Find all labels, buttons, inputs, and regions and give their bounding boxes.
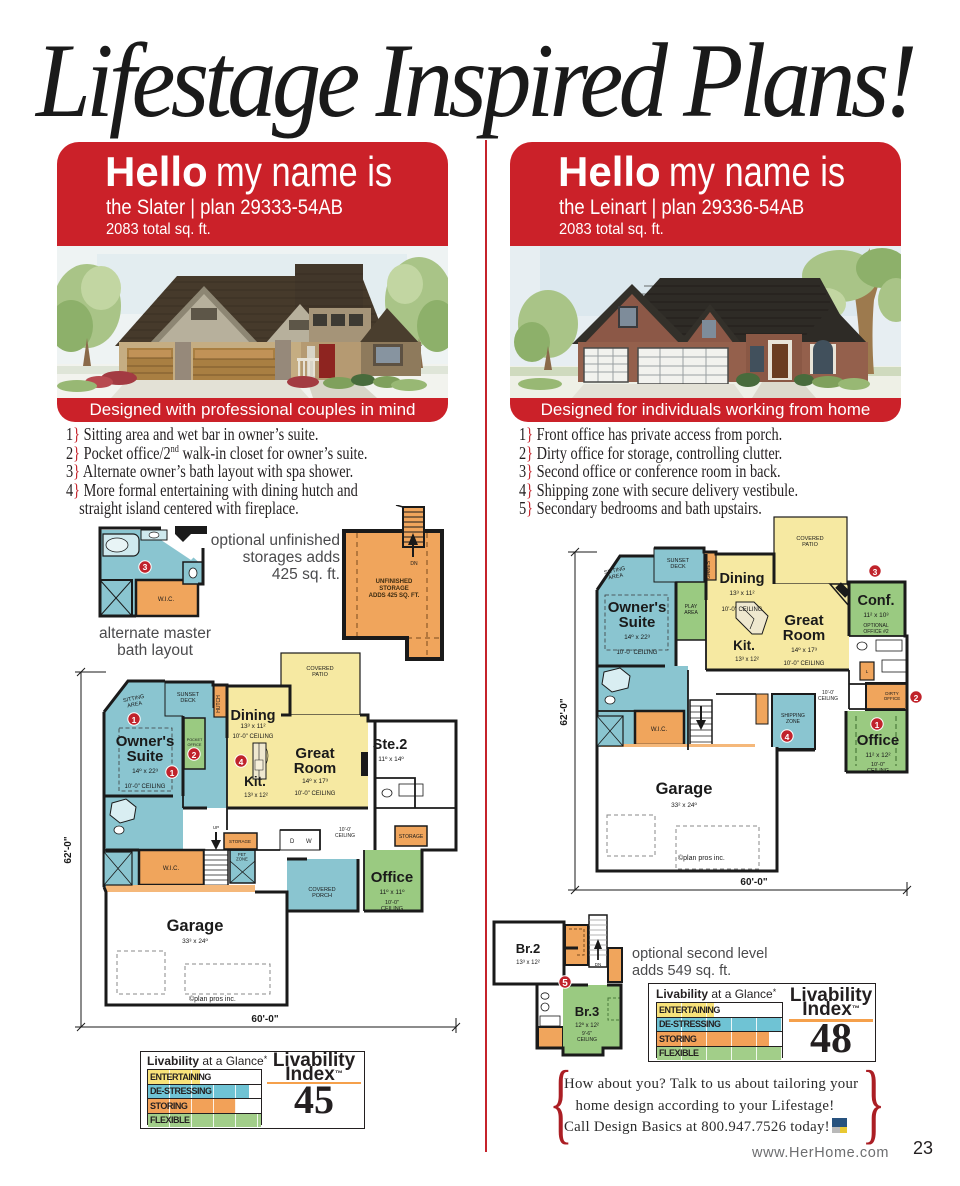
svg-text:W.I.C.: W.I.C.: [651, 727, 668, 733]
svg-text:OFFICE: OFFICE: [884, 696, 901, 701]
svg-text:10'-0" CEILING: 10'-0" CEILING: [617, 650, 658, 656]
svg-text:CEILING: CEILING: [335, 833, 355, 839]
svg-text:2: 2: [192, 750, 197, 760]
svg-text:11º x 11º: 11º x 11º: [379, 889, 405, 896]
svg-text:4: 4: [239, 757, 244, 767]
svg-text:PATIO: PATIO: [802, 542, 818, 548]
svg-text:ZONE: ZONE: [786, 719, 801, 725]
svg-text:DN: DN: [410, 561, 418, 567]
svg-text:11² x 10³: 11² x 10³: [863, 612, 889, 619]
svg-text:Kit.: Kit.: [733, 638, 755, 653]
svg-text:CEILING: CEILING: [867, 768, 889, 774]
svg-text:CEILING: CEILING: [381, 906, 403, 912]
svg-text:3: 3: [873, 567, 878, 577]
svg-text:DN: DN: [595, 962, 602, 967]
svg-text:STORAGE: STORAGE: [229, 839, 251, 844]
svg-text:10'-0" CEILING: 10'-0" CEILING: [233, 734, 274, 740]
svg-text:Office: Office: [371, 869, 414, 886]
svg-text:POCKET: POCKET: [187, 738, 203, 742]
svg-text:Garage: Garage: [167, 917, 224, 935]
svg-text:Suite: Suite: [619, 614, 656, 631]
svg-text:10'-0" CEILING: 10'-0" CEILING: [295, 791, 336, 797]
svg-text:1: 1: [875, 720, 880, 730]
svg-text:5: 5: [562, 978, 568, 989]
svg-text:4: 4: [785, 732, 790, 742]
svg-text:Ste.2: Ste.2: [373, 737, 408, 753]
svg-text:CEILING: CEILING: [577, 1037, 597, 1043]
svg-text:14º x 22³: 14º x 22³: [132, 768, 159, 775]
svg-text:Br.3: Br.3: [575, 1004, 600, 1019]
svg-text:14º x 17³: 14º x 17³: [302, 778, 329, 785]
svg-text:1: 1: [132, 715, 137, 725]
svg-text:Conf.: Conf.: [857, 593, 894, 609]
svg-text:10'-0" CEILING: 10'-0" CEILING: [784, 661, 825, 667]
svg-text:W.I.C.: W.I.C.: [163, 866, 180, 872]
svg-text:DECK: DECK: [670, 564, 686, 570]
svg-text:62'-0": 62'-0": [63, 836, 74, 863]
svg-text:UP: UP: [213, 825, 219, 830]
svg-text:Kit.: Kit.: [244, 774, 266, 789]
svg-text:©plan pros inc.: ©plan pros inc.: [189, 995, 236, 1003]
svg-text:14º x 17³: 14º x 17³: [791, 647, 818, 654]
svg-text:33³ x 24º: 33³ x 24º: [182, 938, 208, 945]
svg-text:W: W: [306, 839, 312, 845]
svg-text:Room: Room: [294, 760, 337, 777]
svg-text:CEILING: CEILING: [818, 696, 838, 702]
svg-text:HUTCH: HUTCH: [216, 695, 222, 713]
svg-text:60'-0": 60'-0": [740, 877, 767, 888]
svg-text:60'-0": 60'-0": [251, 1014, 278, 1025]
svg-text:AREA: AREA: [684, 610, 698, 616]
svg-text:Room: Room: [783, 627, 826, 644]
svg-text:13³ x 11²: 13³ x 11²: [240, 723, 266, 730]
svg-text:Br.2: Br.2: [516, 941, 541, 956]
svg-text:3: 3: [143, 562, 148, 572]
svg-text:11º x 14º: 11º x 14º: [378, 756, 404, 763]
svg-text:UNFINISHED: UNFINISHED: [376, 579, 413, 585]
svg-text:PORCH: PORCH: [312, 893, 332, 899]
svg-text:Garage: Garage: [656, 780, 713, 798]
svg-text:10'-0" CEILING: 10'-0" CEILING: [125, 784, 166, 790]
svg-text:ZONE: ZONE: [236, 857, 248, 862]
svg-text:PATIO: PATIO: [312, 672, 328, 678]
svg-text:14º x 22³: 14º x 22³: [624, 634, 651, 641]
svg-text:Office: Office: [857, 732, 900, 749]
svg-text:Dining: Dining: [230, 708, 275, 724]
svg-text:11² x 12²: 11² x 12²: [865, 752, 891, 759]
svg-text:OFFICE #2: OFFICE #2: [863, 629, 889, 635]
svg-text:13³ x 12²: 13³ x 12²: [516, 960, 540, 966]
svg-text:©plan pros inc.: ©plan pros inc.: [678, 854, 725, 862]
svg-text:ADDS 425 SQ. FT.: ADDS 425 SQ. FT.: [369, 593, 420, 599]
svg-text:12º x 12²: 12º x 12²: [575, 1022, 599, 1029]
svg-text:W.I.C.: W.I.C.: [158, 597, 175, 603]
svg-text:STORAGE: STORAGE: [399, 834, 424, 840]
svg-text:Suite: Suite: [127, 748, 164, 765]
svg-text:OFFICE: OFFICE: [188, 743, 202, 747]
svg-text:62'-0": 62'-0": [560, 698, 570, 725]
svg-text:33² x 24º: 33² x 24º: [671, 802, 697, 809]
svg-text:STORAGE: STORAGE: [379, 586, 409, 592]
svg-text:10'-0" CEILING: 10'-0" CEILING: [722, 607, 763, 613]
svg-text:13³ x 12²: 13³ x 12²: [735, 657, 759, 663]
svg-text:GAMES: GAMES: [706, 560, 712, 579]
svg-text:2: 2: [914, 693, 919, 703]
svg-text:DECK: DECK: [180, 698, 196, 704]
svg-text:Dining: Dining: [719, 571, 764, 587]
svg-text:13³ x 11²: 13³ x 11²: [729, 590, 755, 597]
svg-text:13³ x 12²: 13³ x 12²: [244, 793, 268, 799]
svg-text:1: 1: [170, 768, 175, 778]
svg-text:D: D: [290, 839, 295, 845]
